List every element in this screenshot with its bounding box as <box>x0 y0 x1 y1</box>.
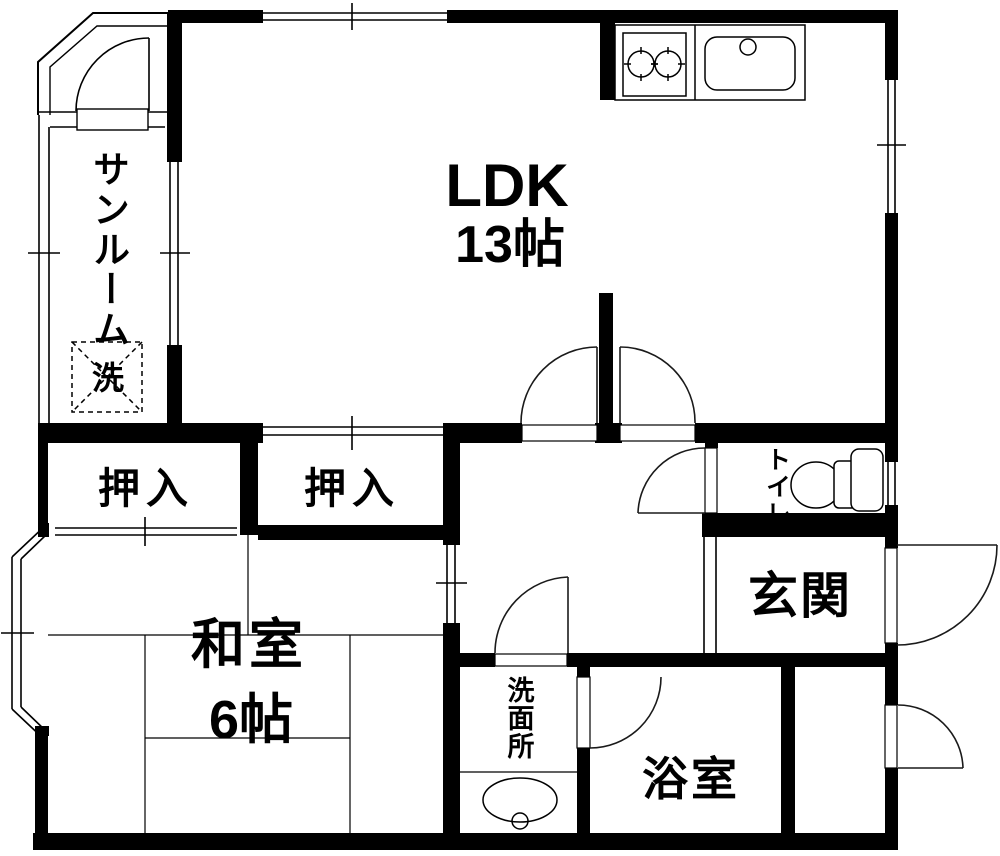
washer-label: 洗 <box>92 362 124 394</box>
closet-right-label: 押入 <box>304 468 400 510</box>
washroom-door-threshold <box>495 654 567 666</box>
washbasin-icon <box>460 772 577 829</box>
washroom-label: 洗面所 <box>505 676 532 760</box>
floorplan: LDK 13帖 サンルーム 洗 押入 押入 和室 6帖 トイレ 玄関 洗面所 浴… <box>0 0 1000 856</box>
ldk-door1-threshold <box>522 425 597 441</box>
storage-door-frame <box>885 705 897 768</box>
ldk-hall-door-right <box>620 347 695 423</box>
entrance-door-frame <box>885 548 897 643</box>
ldk-door2-threshold <box>620 425 695 441</box>
bathroom-door-leaf <box>577 677 590 748</box>
walls <box>33 10 898 850</box>
stove-icon <box>623 33 686 96</box>
ldk-hall-door-left <box>521 347 597 423</box>
ldk-label: LDK <box>445 156 568 216</box>
storage-door <box>898 705 963 768</box>
toilet-door-frame <box>705 448 717 513</box>
porch-door-arc <box>76 38 149 111</box>
toilet-label: トイレ <box>764 447 789 528</box>
ldk-size-label: 13帖 <box>455 219 565 271</box>
bathroom-label: 浴室 <box>642 756 740 802</box>
sunroom-label: サンルーム <box>90 150 127 350</box>
sunroom-porch <box>38 13 168 130</box>
washroom-door <box>495 577 568 653</box>
swing-doors <box>495 347 997 768</box>
japanese-room-label: 和室 <box>191 618 307 672</box>
japanese-room-size-label: 6帖 <box>209 693 293 747</box>
kitchen-counter-icon <box>615 25 805 100</box>
toilet-icon <box>791 449 883 511</box>
tatami-lines <box>48 535 443 833</box>
floorplan-drawing <box>0 0 1000 856</box>
entrance-door <box>897 545 997 645</box>
toilet-door <box>638 448 705 513</box>
bay-window <box>1 524 47 742</box>
bathroom-door <box>590 677 661 748</box>
closet-left-label: 押入 <box>98 468 194 510</box>
entrance-label: 玄関 <box>748 571 852 621</box>
